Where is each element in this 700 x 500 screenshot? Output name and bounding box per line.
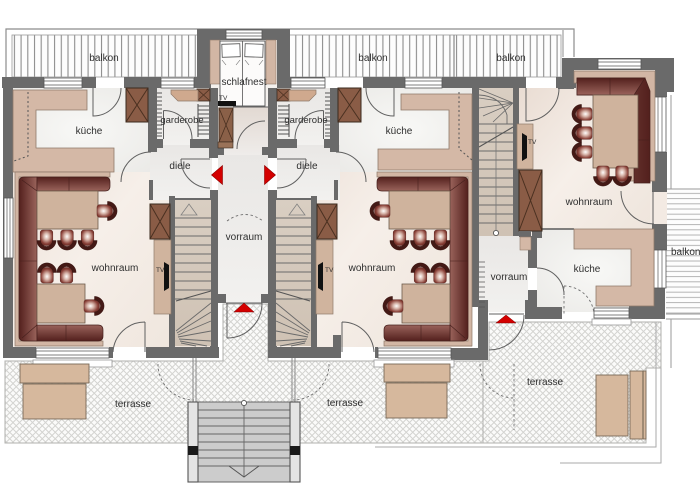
svg-text:vorraum: vorraum: [226, 232, 263, 243]
svg-text:küche: küche: [574, 264, 601, 275]
svg-text:TV: TV: [219, 95, 228, 102]
svg-text:TV: TV: [325, 267, 334, 274]
svg-text:terrasse: terrasse: [115, 399, 152, 410]
svg-text:diele: diele: [169, 161, 191, 172]
svg-text:balkon: balkon: [358, 53, 387, 64]
svg-text:TV: TV: [156, 267, 165, 274]
svg-text:küche: küche: [386, 126, 413, 137]
svg-text:TV: TV: [528, 139, 537, 146]
svg-text:wohnraum: wohnraum: [91, 263, 139, 274]
svg-text:terrasse: terrasse: [527, 377, 564, 388]
svg-text:küche: küche: [76, 126, 103, 137]
svg-text:wohnraum: wohnraum: [348, 263, 396, 274]
svg-text:wohnraum: wohnraum: [565, 197, 613, 208]
svg-text:balkon: balkon: [89, 53, 118, 64]
svg-text:vorraum: vorraum: [491, 272, 528, 283]
svg-text:schlafnest: schlafnest: [221, 77, 266, 88]
svg-text:balkon: balkon: [496, 53, 525, 64]
svg-text:garderobe: garderobe: [160, 115, 203, 126]
svg-text:balkon: balkon: [671, 247, 700, 258]
svg-text:garderobe: garderobe: [284, 115, 327, 126]
svg-text:diele: diele: [296, 161, 318, 172]
svg-text:terrasse: terrasse: [327, 398, 364, 409]
